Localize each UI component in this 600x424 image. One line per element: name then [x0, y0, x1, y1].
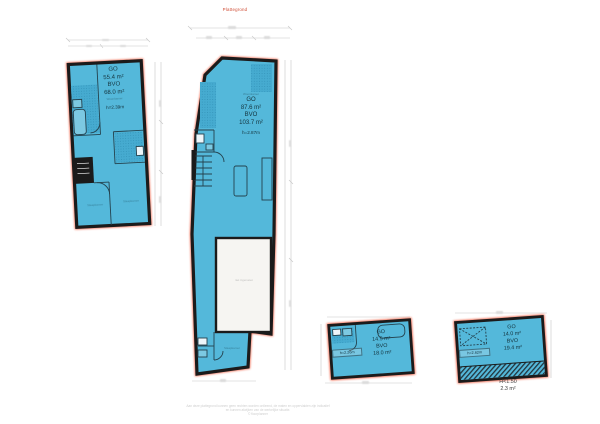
ceiling-height-note: h=2.87m: [222, 130, 280, 135]
dimension-label: [236, 36, 242, 39]
floorplan-annex-2: GO 14.0 m² BVO 19.4 m² h=2.62m: [454, 315, 548, 383]
dimension-label: [120, 45, 126, 47]
bvo-label: BVO: [222, 112, 280, 120]
room-label: Slaapkamer: [218, 346, 246, 350]
floorplan-annex-1: GO 14.5 m² BVO 18.0 m² h=2.26m: [327, 318, 415, 380]
dimension-label: [289, 300, 292, 307]
go-value: 87.6 m²: [222, 105, 280, 113]
low-height-label: H<1.50: [480, 379, 536, 386]
dimension-label: [289, 140, 292, 147]
floorplan-sheet: Plattegrond: [0, 0, 600, 424]
dimension-label: [362, 381, 369, 384]
low-height-annotation: H<1.50 2.3 m²: [480, 379, 536, 393]
disclaimer: Aan deze plattegrond kunnen geen rechten…: [175, 404, 341, 417]
bvo-value: 103.7 m²: [222, 120, 280, 128]
dimension-label: [159, 196, 162, 203]
dimension-label: [228, 26, 236, 29]
dimension-label: [264, 36, 270, 39]
dimension-label: [220, 379, 226, 382]
dimension-label: [206, 36, 212, 39]
area-summary: GO 14.5 m² BVO 18.0 m²: [356, 328, 408, 359]
area-summary: GO 14.0 m² BVO 19.4 m²: [486, 322, 538, 353]
floorplan-left-dwelling: GO 55.4 m² BVO 68.0 m² Woonkamer h=2.39m…: [66, 58, 153, 230]
excluded-room-label: niet ingemeten: [224, 278, 264, 282]
dimension-label: [496, 311, 503, 314]
floorplan-middle-dwelling: Woonkamer GO 87.6 m² BVO 103.7 m² h=2.87…: [188, 54, 280, 376]
dimension-label: [102, 39, 109, 42]
go-label: GO: [222, 97, 280, 105]
disclaimer-line-3: © floorplanner: [175, 412, 341, 416]
dimension-label: [159, 100, 162, 107]
area-summary: GO 55.4 m² BVO 68.0 m² Woonkamer h=2.39m: [86, 65, 142, 111]
dimension-label: [86, 45, 92, 47]
area-summary: Woonkamer GO 87.6 m² BVO 103.7 m² h=2.87…: [222, 92, 280, 135]
room-note: Woonkamer: [222, 92, 280, 97]
low-height-value: 2.3 m²: [480, 386, 536, 393]
